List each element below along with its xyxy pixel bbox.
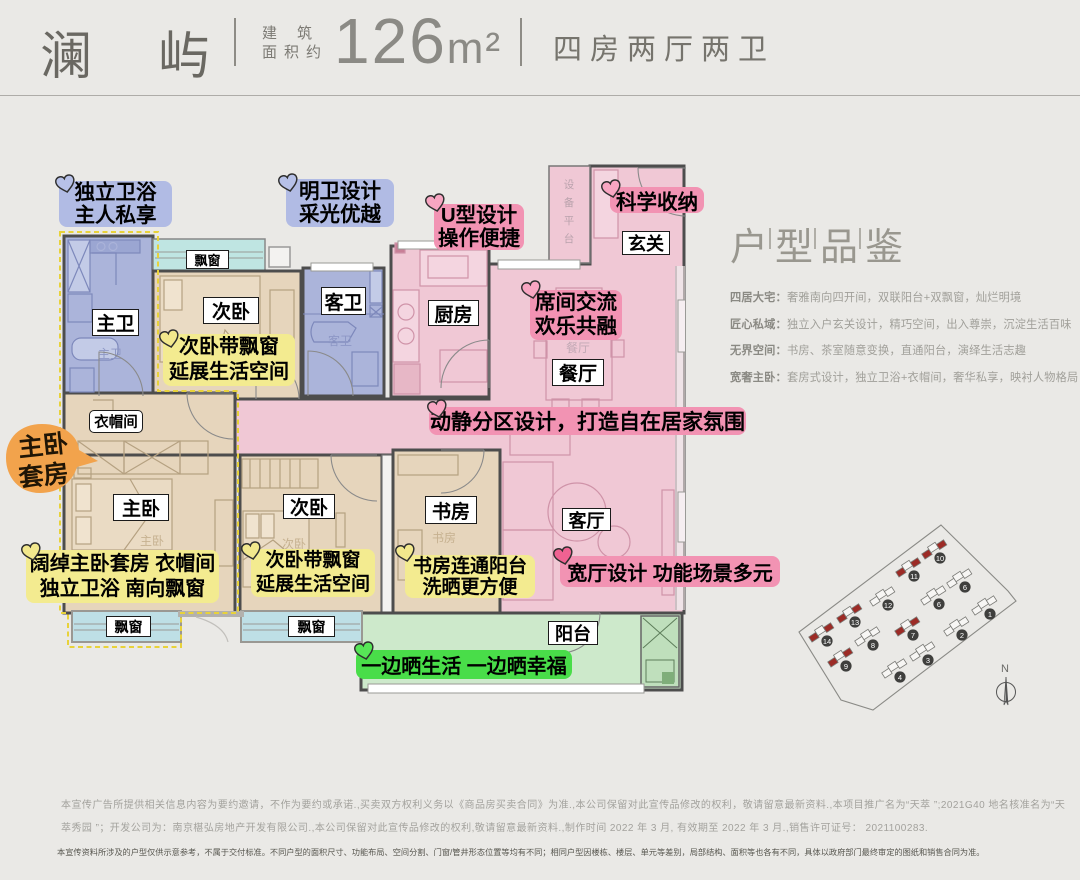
svg-text:13: 13 [851,618,859,627]
svg-text:7: 7 [911,631,915,640]
svg-text:1: 1 [988,610,992,619]
svg-text:餐厅: 餐厅 [566,340,590,355]
svg-text:3: 3 [926,656,930,665]
svg-text:N: N [1001,663,1009,675]
svg-text:12: 12 [884,601,892,610]
svg-text:14: 14 [823,637,831,646]
svg-text:4: 4 [898,673,902,682]
svg-text:8: 8 [871,641,875,650]
svg-text:主卧: 主卧 [17,430,70,463]
svg-text:6: 6 [963,583,967,592]
svg-text:11: 11 [910,572,918,581]
svg-text:2: 2 [960,631,964,640]
svg-text:书房: 书房 [432,530,456,545]
svg-text:平: 平 [564,215,575,227]
svg-text:9: 9 [844,662,848,671]
svg-text:台: 台 [564,232,575,245]
svg-text:6: 6 [937,600,941,609]
svg-text:备: 备 [564,196,575,209]
svg-text:主卫: 主卫 [98,347,122,361]
svg-text:主卧: 主卧 [140,534,164,548]
svg-text:10: 10 [936,554,944,563]
svg-text:设: 设 [564,179,575,191]
svg-text:套房: 套房 [16,458,70,492]
svg-text:客卫: 客卫 [328,333,352,348]
